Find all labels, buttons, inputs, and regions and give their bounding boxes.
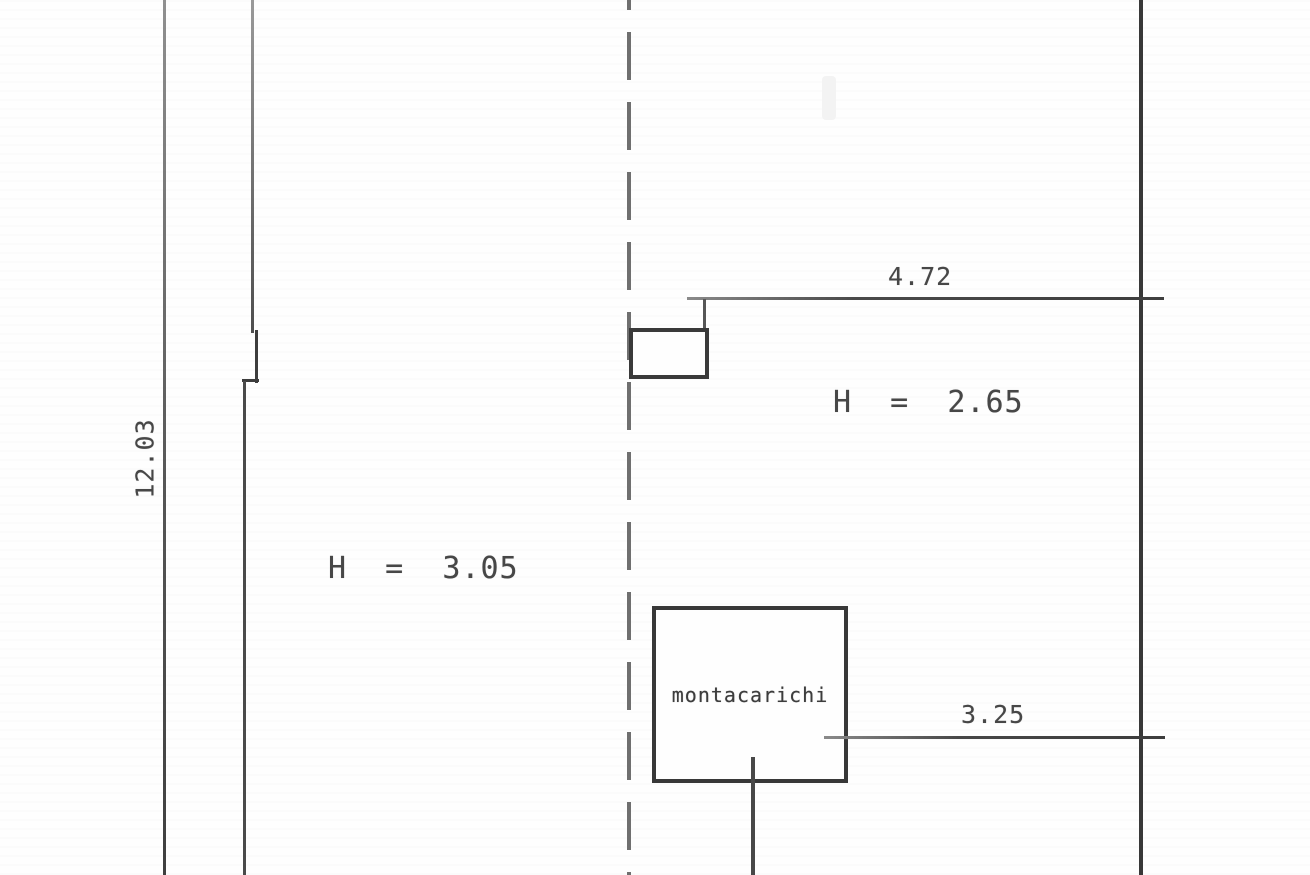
freight-lift-shaft-box: montacarichi	[652, 606, 848, 783]
inner-wall-offset-segment	[255, 330, 258, 383]
dimension-value-top-opening: 4.72	[888, 262, 952, 291]
ceiling-height-label-left-room: H = 3.05	[328, 551, 519, 586]
dimension-line-bottom-opening	[824, 736, 1165, 739]
inner-wall-upper-segment	[251, 0, 254, 333]
freight-lift-label: montacarichi	[672, 683, 829, 707]
dimension-value-overall-depth: 12.03	[131, 418, 160, 500]
left-boundary-wall	[163, 0, 166, 875]
floor-plan-drawing: 4.72 H = 2.65 H = 3.05 12.03 montacarich…	[0, 0, 1310, 875]
right-boundary-wall	[1139, 0, 1143, 875]
lift-leader-line	[751, 757, 755, 875]
dashed-partition-axis	[627, 0, 631, 875]
dimension-line-top-opening	[687, 297, 1164, 300]
inner-wall-lower-segment	[243, 381, 246, 875]
ceiling-height-label-right-room: H = 2.65	[833, 385, 1024, 420]
dimension-value-bottom-opening: 3.25	[961, 700, 1025, 729]
dimension-tick-top-opening	[703, 299, 706, 330]
wall-opening-rectangle	[629, 328, 709, 379]
scan-smudge-artifact	[822, 76, 836, 120]
